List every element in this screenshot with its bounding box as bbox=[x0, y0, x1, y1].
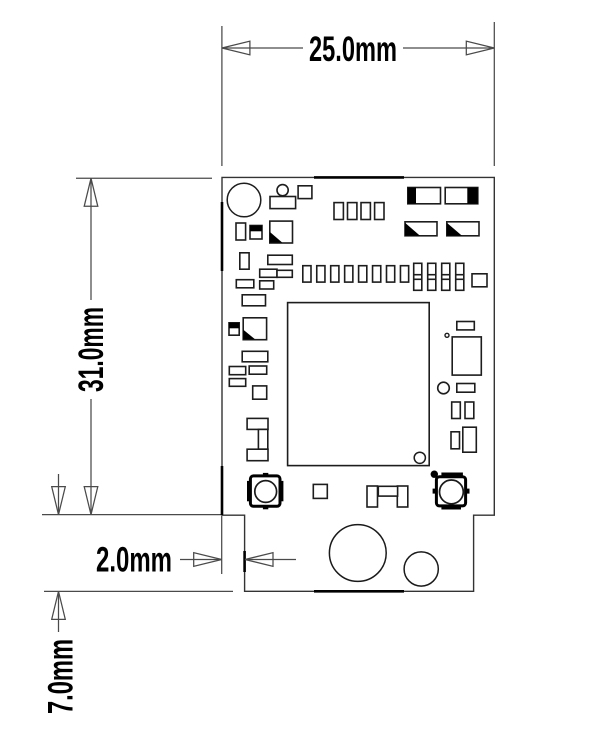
svg-text:7.0mm: 7.0mm bbox=[42, 639, 81, 714]
svg-text:25.0mm: 25.0mm bbox=[309, 30, 397, 69]
svg-text:31.0mm: 31.0mm bbox=[72, 307, 111, 392]
svg-text:2.0mm: 2.0mm bbox=[96, 540, 172, 579]
